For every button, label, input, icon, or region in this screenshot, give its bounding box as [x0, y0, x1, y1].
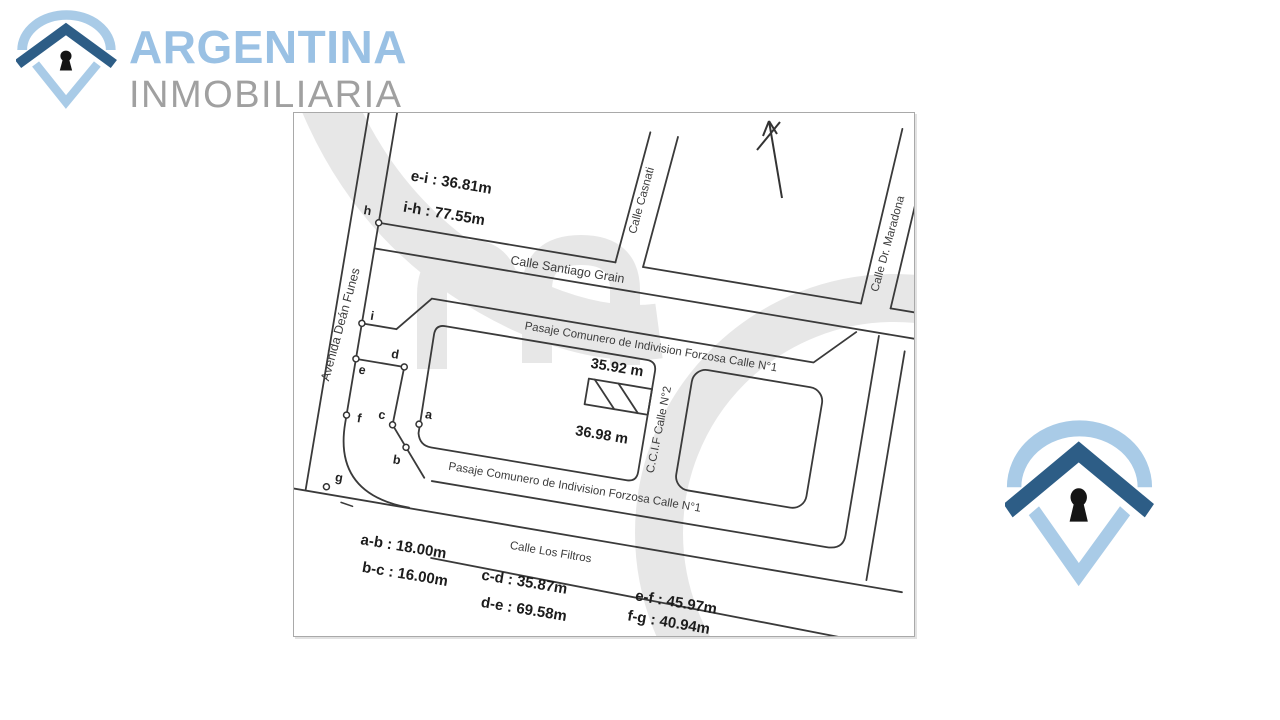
access-stub-top [362, 323, 397, 329]
point-label-f: f [356, 411, 363, 426]
brand-text: ARGENTINA INMOBILIARIA [129, 24, 407, 114]
logo-keyhole-stem [60, 59, 72, 71]
survey-point-f [343, 412, 350, 419]
measurement-b-c: b-c : 16.00m [361, 559, 449, 590]
point-label-c: c [377, 407, 386, 422]
survey-point-g [323, 483, 330, 490]
brand-logo-icon-large [1005, 420, 1157, 588]
brand-logo-icon [16, 10, 119, 110]
hatched-strip-diagonals [590, 380, 642, 414]
logo-keyhole-stem [1070, 502, 1088, 521]
survey-point-c [389, 421, 396, 428]
lot-dimension-back: 36.98 m [574, 423, 629, 448]
point-label-i: i [369, 309, 375, 323]
survey-point-e [352, 355, 359, 362]
tick-mark-near-g [341, 502, 353, 506]
survey-point-h [375, 219, 382, 226]
brand-header: ARGENTINA INMOBILIARIA [16, 10, 407, 114]
measurement-d-e: d-e : 69.58m [480, 594, 568, 625]
survey-point-b [403, 444, 410, 451]
page: ARGENTINA INMOBILIARIA [0, 0, 1280, 720]
point-label-a: a [424, 407, 434, 422]
street-label-los-filtros: Calle Los Filtros [509, 540, 593, 565]
survey-map-frame: h i e f g a b c d Calle Santiago Grain P… [293, 112, 915, 637]
survey-plan-map: h i e f g a b c d Calle Santiago Grain P… [294, 113, 914, 636]
point-label-d: d [390, 347, 400, 362]
survey-point-a [416, 421, 423, 428]
watermark-band [324, 113, 659, 333]
point-label-g: g [334, 470, 344, 485]
point-label-e: e [358, 363, 367, 378]
survey-point-d [401, 363, 408, 370]
point-label-b: b [392, 452, 402, 467]
survey-point-i [358, 320, 365, 327]
north-arrow-icon [757, 121, 782, 198]
measurement-e-i: e-i : 36.81m [410, 168, 493, 198]
ring-street-far-right-line [866, 351, 904, 580]
measurement-c-d: c-d : 35.87m [480, 567, 568, 598]
brand-title: ARGENTINA [129, 24, 407, 70]
brand-subtitle: INMOBILIARIA [129, 76, 407, 114]
measurement-a-b: a-b : 18.00m [359, 531, 447, 562]
